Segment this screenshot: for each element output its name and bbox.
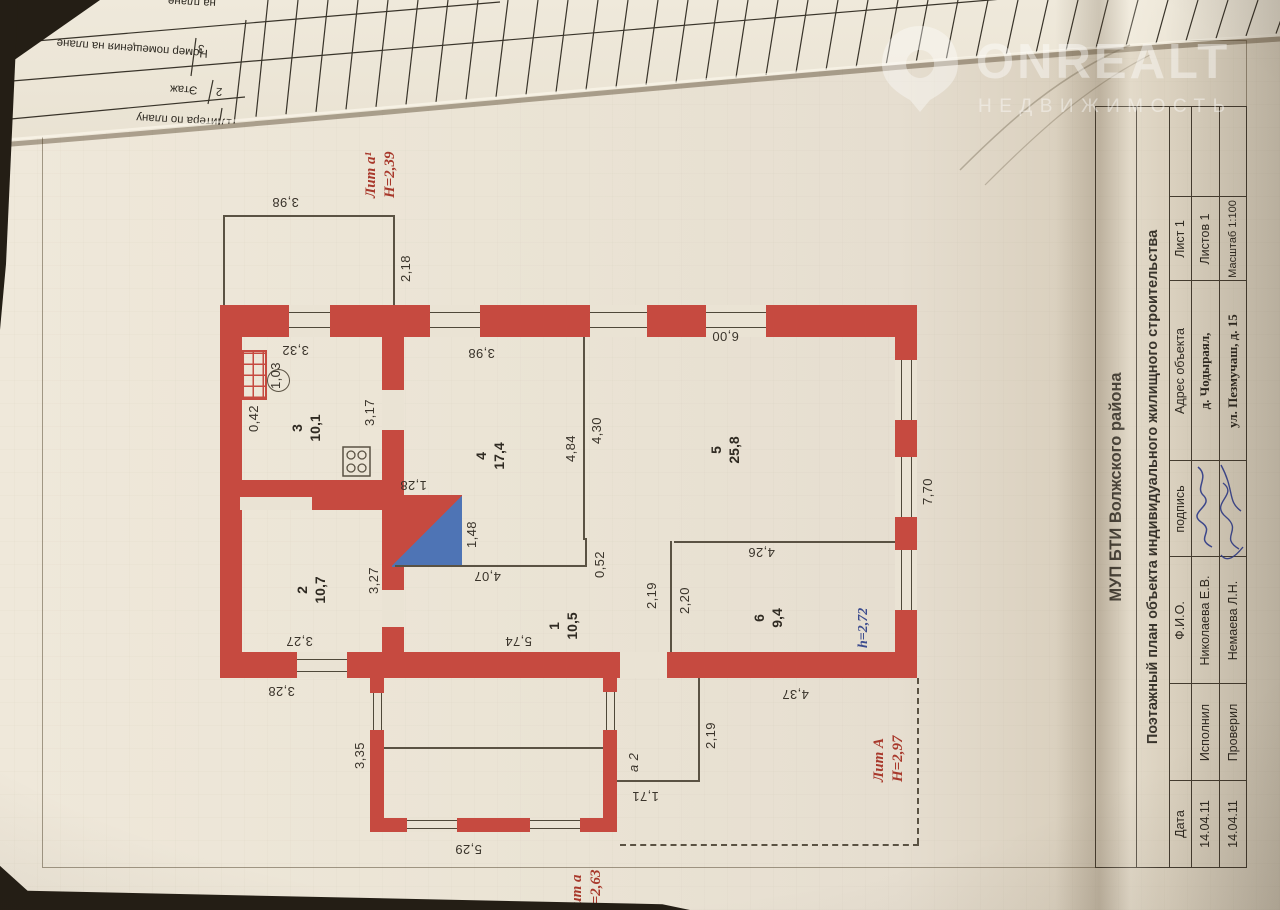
- dim-1-28: 1,28: [400, 478, 427, 493]
- annex1-bottom-edge: [393, 215, 395, 305]
- tb-header-name: Ф.И.О.: [1169, 557, 1191, 684]
- window-glyph: [901, 457, 912, 517]
- dim-2-19-porch: 2,19: [703, 722, 718, 749]
- dim-1-71: 1,71: [632, 789, 659, 804]
- tb-organization: МУП БТИ Волжского района: [1096, 107, 1136, 867]
- title-block: МУП БТИ Волжского района Поэтажный план …: [1095, 106, 1247, 868]
- litera-A-label: Лит АН=2,97: [870, 736, 908, 782]
- dim-3-17: 3,17: [362, 399, 377, 426]
- page-edge-effects: [0, 0, 1280, 190]
- tb-scale: Масштаб 1:100: [1219, 197, 1246, 281]
- porch-left-edge: [617, 780, 700, 782]
- dim-1-48: 1,48: [464, 521, 479, 548]
- gas-stove-icon: [342, 446, 371, 477]
- dim-1-03: 1,03: [268, 362, 283, 389]
- tb-address-line2: ул. Пезмучаш, д. 15: [1219, 281, 1246, 461]
- tb-header-date: Дата: [1169, 781, 1191, 867]
- window-glyph: [430, 312, 480, 328]
- tb-sheet: Лист 1: [1169, 197, 1191, 281]
- window-glyph: [901, 360, 912, 420]
- dim-3-27-room2: 3,27: [286, 634, 313, 649]
- partition-room5-room6: [674, 541, 895, 543]
- annex2-divider: [384, 747, 603, 749]
- partition-room1-room4: [395, 565, 585, 567]
- tb-row2-role: Проверил: [1219, 684, 1246, 781]
- dim-6-00: 6,00: [712, 329, 739, 344]
- dim-2-20: 2,20: [677, 587, 692, 614]
- window-glyph: [297, 659, 347, 672]
- photo-of-floor-plan-document: 310,1 210,7 417,4 110,5 525,8 69,4 3,98 …: [0, 0, 1280, 910]
- house-top-wall: [220, 305, 242, 678]
- dim-7-70: 7,70: [920, 478, 935, 505]
- masonry-stove-icon: [242, 350, 267, 400]
- dim-0-42: 0,42: [246, 405, 261, 432]
- dim-4-30: 4,30: [589, 417, 604, 444]
- window-glyph: [373, 693, 382, 730]
- dim-3-98-annex: 3,98: [272, 195, 299, 210]
- dim-3-27-wall: 3,27: [366, 567, 381, 594]
- window-glyph: [606, 692, 615, 730]
- dim-4-84: 4,84: [563, 435, 578, 462]
- annex1-far-edge: [223, 215, 395, 217]
- room-label-3: 310,1: [288, 408, 324, 448]
- room-label-4: 417,4: [472, 436, 508, 476]
- window-glyph: [901, 550, 912, 610]
- tb-address-line1: д. Чодыраял,: [1191, 281, 1219, 461]
- annex1-top-edge: [223, 215, 225, 305]
- dim-0-52: 0,52: [592, 551, 607, 578]
- tb-header-address: Адрес объекта: [1169, 281, 1191, 461]
- door-opening: [382, 390, 404, 430]
- tb-doc-title: Поэтажный план объекта индивидуального ж…: [1136, 107, 1169, 867]
- ceiling-height-label: h=2,72: [856, 608, 872, 648]
- window-glyph: [590, 312, 647, 328]
- room-label-6: 69,4: [750, 598, 786, 638]
- signature-checker: [1217, 459, 1246, 577]
- dim-3-28: 3,28: [268, 684, 295, 699]
- room-label-5: 525,8: [707, 430, 743, 470]
- window-glyph: [530, 820, 580, 829]
- dim-3-32: 3,32: [282, 343, 309, 358]
- window-glyph: [407, 820, 457, 829]
- tb-row2-date: 14.04.11: [1219, 781, 1246, 867]
- tb-row1-role: Исполнил: [1191, 684, 1219, 781]
- tb-sheets: Листов 1: [1191, 197, 1219, 281]
- dim-5-29: 5,29: [455, 842, 482, 857]
- porch-bottom-edge: [698, 678, 700, 782]
- dashed-line: [917, 678, 919, 844]
- door-opening: [382, 590, 404, 627]
- tb-header-sign: подпись: [1169, 461, 1191, 557]
- partition-room1-room6: [670, 541, 672, 652]
- window-glyph: [289, 312, 330, 328]
- dim-3-35: 3,35: [352, 742, 367, 769]
- room-label-1: 110,5: [545, 606, 581, 646]
- tb-row1-name: Николаева Е.В.: [1191, 557, 1219, 684]
- dim-2-19-part: 2,19: [644, 582, 659, 609]
- dim-4-26: 4,26: [748, 545, 775, 560]
- stove-boiler-square: [392, 495, 462, 567]
- partition-room4-room5: [583, 337, 585, 540]
- dim-4-37: 4,37: [782, 687, 809, 702]
- partition-step: [585, 538, 587, 567]
- dim-2-18: 2,18: [398, 255, 413, 282]
- dim-5-74: 5,74: [505, 634, 532, 649]
- room-label-2: 210,7: [293, 570, 329, 610]
- dim-3-98-room4: 3,98: [468, 346, 495, 361]
- dim-4-07: 4,07: [474, 569, 501, 584]
- door-opening: [620, 652, 667, 678]
- wall-niche: [240, 497, 312, 510]
- porch-letter-label: а 2: [626, 753, 641, 772]
- dashed-line: [620, 844, 919, 846]
- signature-executor: [1191, 461, 1219, 555]
- tb-row1-date: 14.04.11: [1191, 781, 1219, 867]
- window-glyph: [706, 312, 766, 328]
